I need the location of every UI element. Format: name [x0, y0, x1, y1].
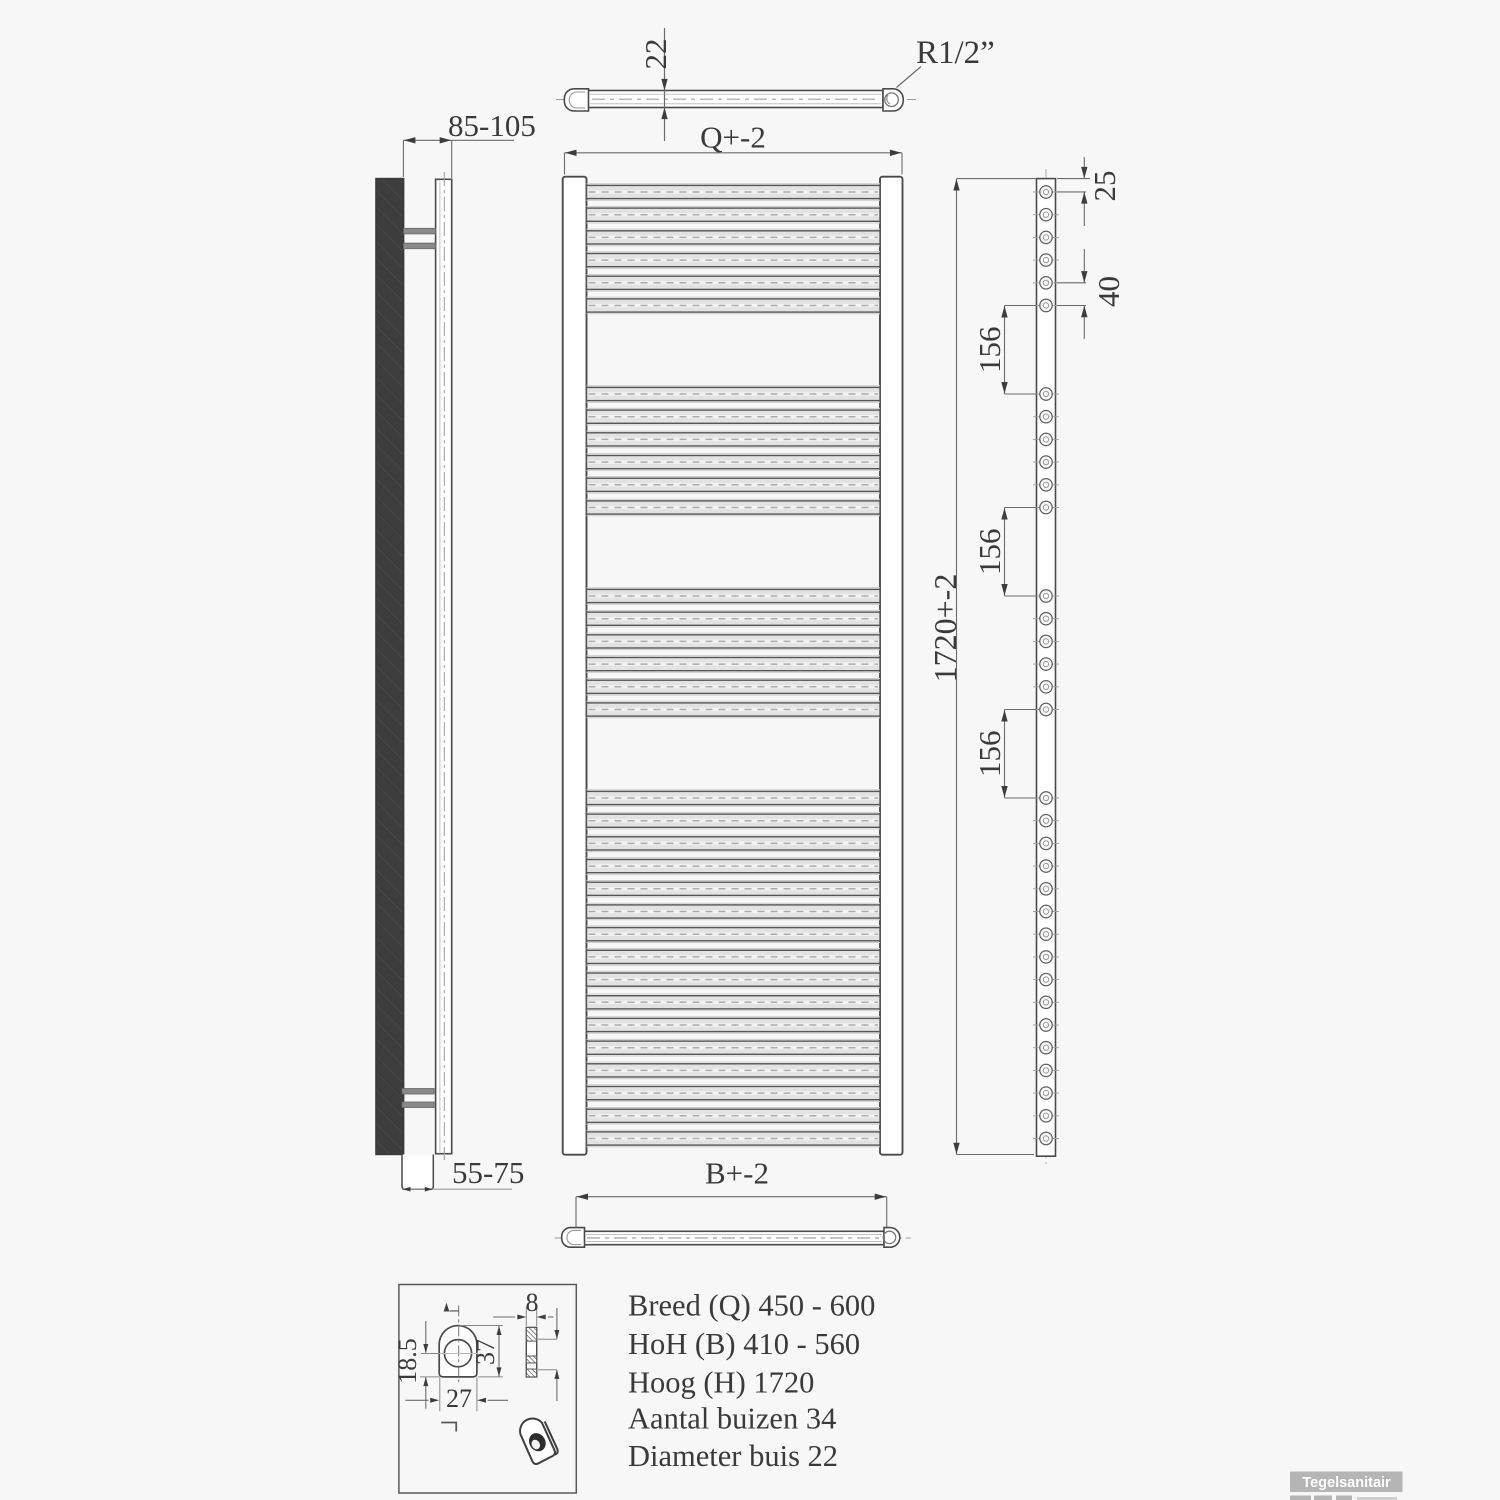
svg-text:8: 8: [526, 1288, 539, 1317]
svg-text:85-105: 85-105: [448, 108, 536, 143]
svg-text:HoH (B) 410 - 560: HoH (B) 410 - 560: [628, 1327, 860, 1361]
svg-text:40: 40: [1091, 276, 1126, 307]
svg-text:37: 37: [471, 1339, 500, 1365]
svg-text:25: 25: [1087, 171, 1122, 202]
svg-text:22: 22: [638, 39, 673, 70]
svg-text:18.5: 18.5: [393, 1338, 422, 1384]
svg-text:R1/2”: R1/2”: [916, 35, 995, 71]
svg-text:Tegelsanitair: Tegelsanitair: [1302, 1475, 1391, 1491]
svg-text:Q+-2: Q+-2: [700, 120, 766, 155]
svg-text:27: 27: [446, 1384, 472, 1413]
svg-text:B+-2: B+-2: [705, 1156, 769, 1191]
svg-text:55-75: 55-75: [452, 1155, 524, 1190]
svg-text:Aantal buizen 34: Aantal buizen 34: [628, 1402, 836, 1436]
svg-text:Hoog (H) 1720: Hoog (H) 1720: [628, 1366, 814, 1400]
svg-text:1720+-2: 1720+-2: [927, 574, 963, 683]
svg-text:Breed (Q) 450 - 600: Breed (Q) 450 - 600: [628, 1289, 875, 1323]
svg-text:156: 156: [972, 327, 1007, 374]
svg-text:156: 156: [972, 731, 1007, 778]
svg-text:156: 156: [972, 529, 1007, 576]
svg-text:Diameter buis 22: Diameter buis 22: [628, 1439, 838, 1473]
